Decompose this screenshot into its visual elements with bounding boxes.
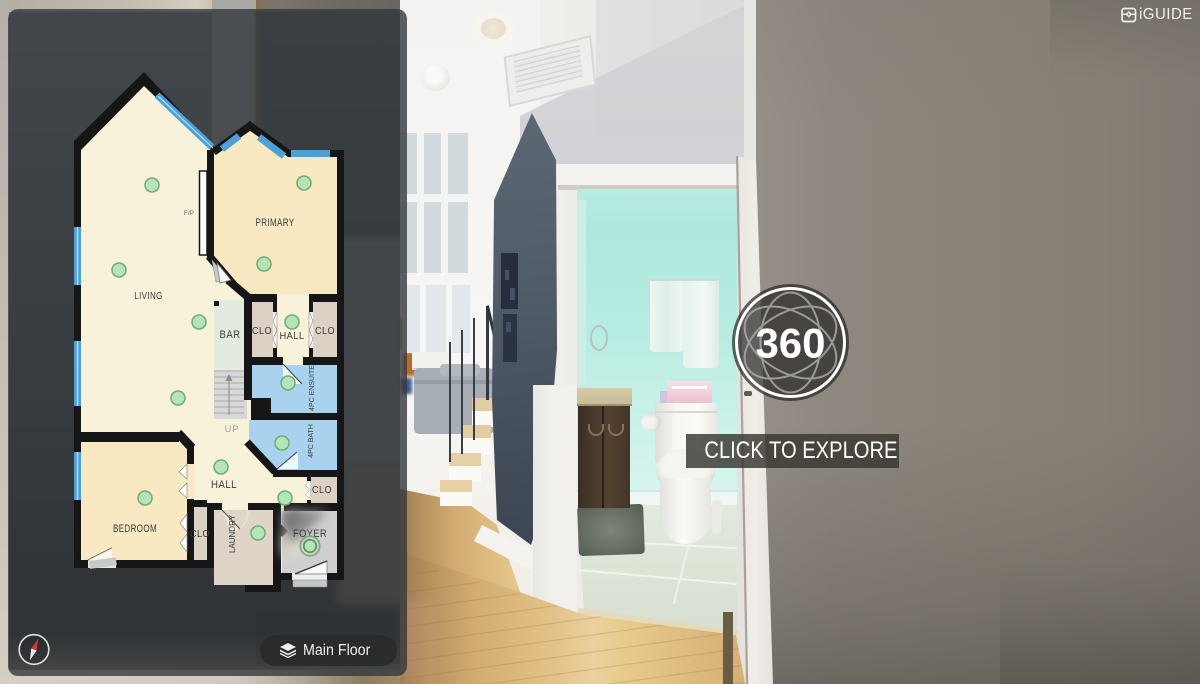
svg-text:4PC BATH: 4PC BATH <box>308 424 315 458</box>
svg-text:CLO: CLO <box>315 325 335 337</box>
svg-text:BAR: BAR <box>220 329 241 341</box>
svg-text:CLO: CLO <box>312 484 332 496</box>
svg-text:FOYER: FOYER <box>293 528 327 540</box>
svg-text:LIVING: LIVING <box>134 290 163 302</box>
svg-text:LAUNDRY: LAUNDRY <box>228 514 237 553</box>
svg-text:4PC ENSUITE: 4PC ENSUITE <box>309 365 316 411</box>
svg-text:HALL: HALL <box>211 479 237 491</box>
svg-text:CLO: CLO <box>252 325 272 337</box>
svg-text:360: 360 <box>755 320 825 367</box>
svg-text:CLO: CLO <box>190 528 210 540</box>
svg-text:F/P: F/P <box>184 210 194 217</box>
svg-text:UP: UP <box>225 424 240 434</box>
svg-text:PRIMARY: PRIMARY <box>256 217 295 229</box>
svg-text:HALL: HALL <box>280 330 305 342</box>
svg-text:BEDROOM: BEDROOM <box>113 523 157 535</box>
